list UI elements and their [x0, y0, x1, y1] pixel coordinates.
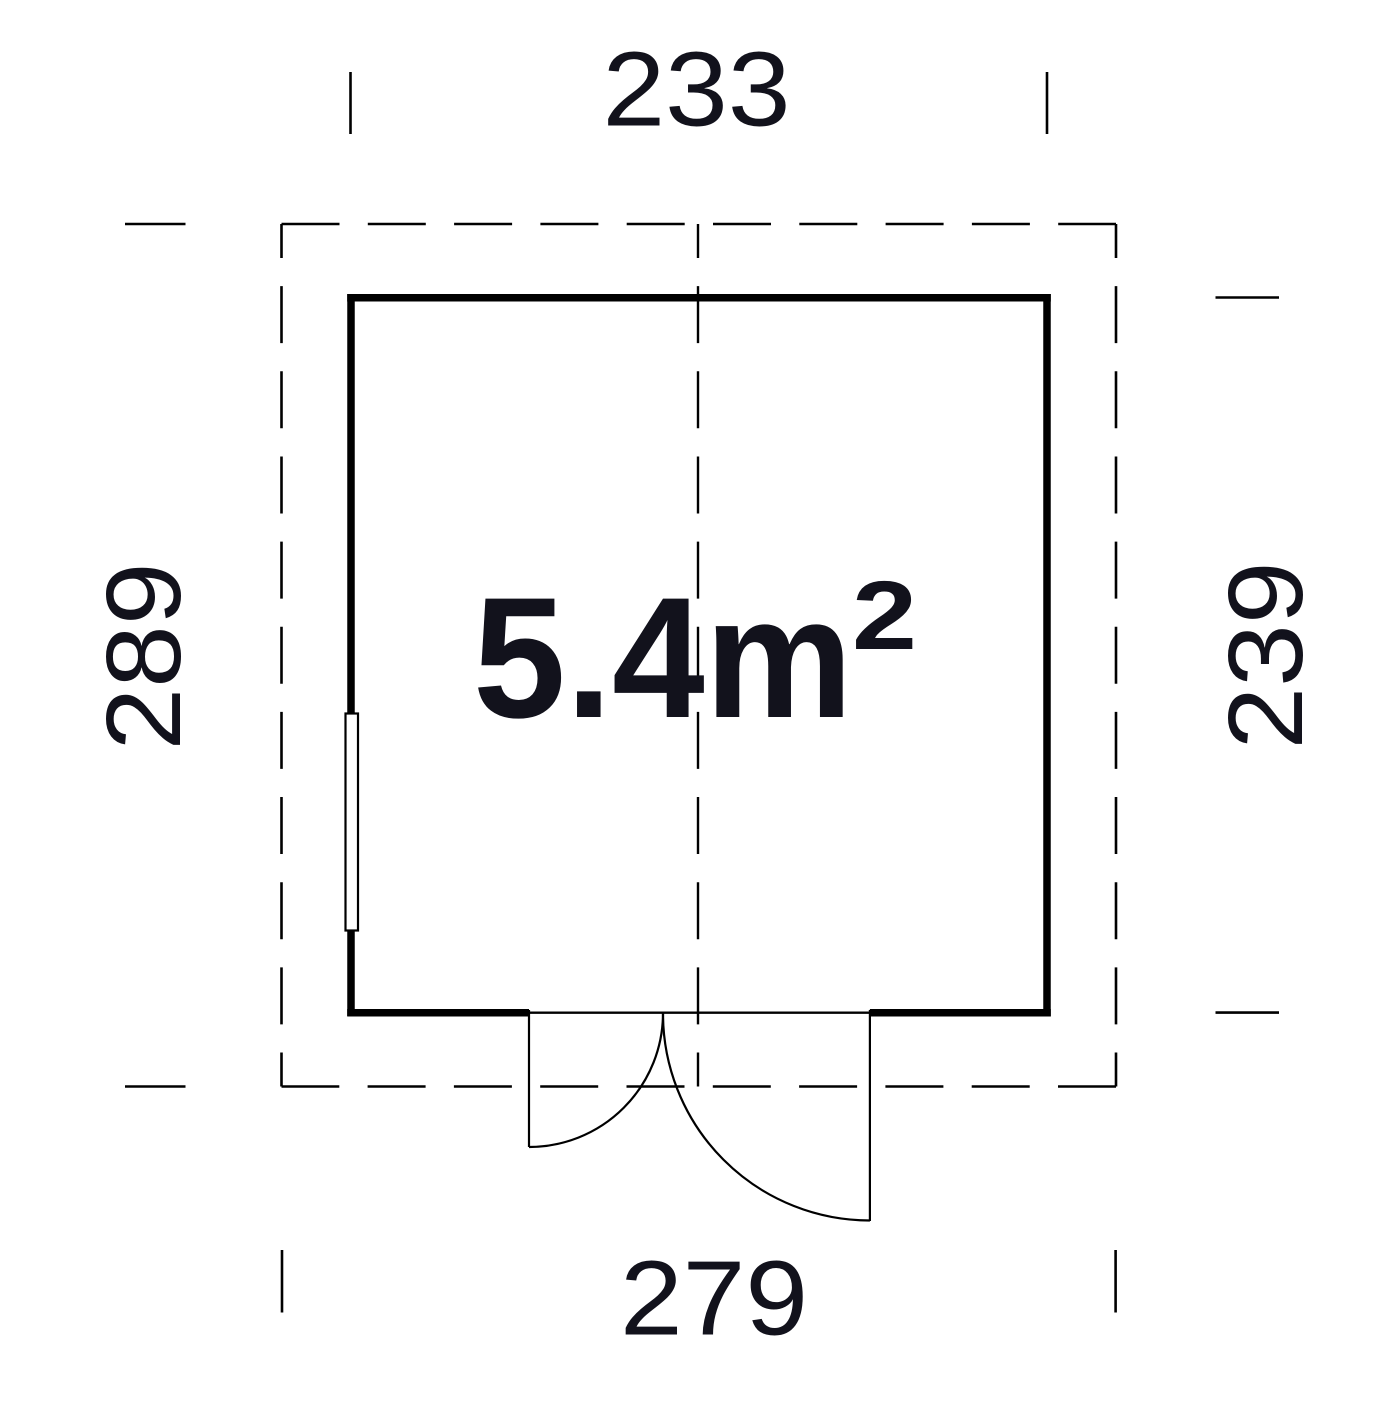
svg-text:279: 279: [620, 1240, 808, 1358]
svg-text:5.4m: 5.4m: [473, 562, 853, 754]
svg-text:239: 239: [1207, 562, 1325, 750]
svg-text:289: 289: [85, 563, 203, 751]
svg-text:233: 233: [603, 31, 791, 149]
svg-text:2: 2: [852, 561, 917, 670]
